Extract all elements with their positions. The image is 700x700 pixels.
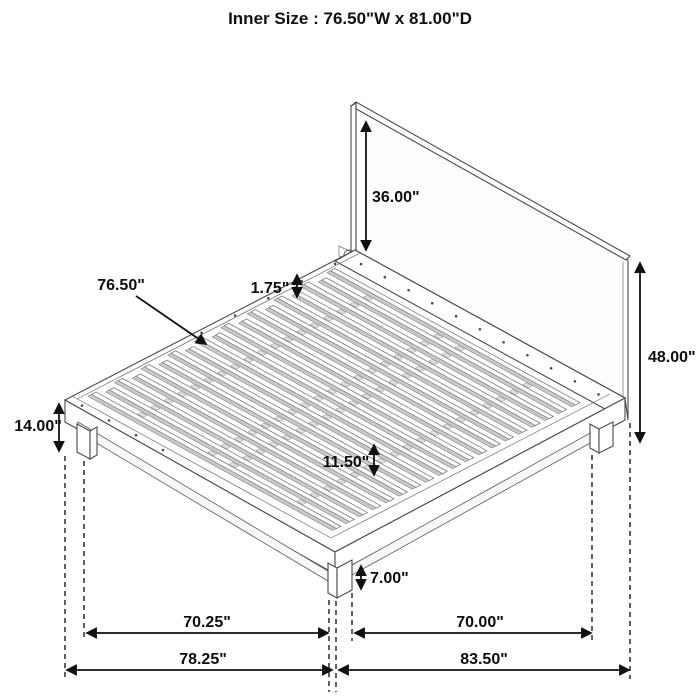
screw-dot bbox=[479, 328, 482, 331]
left-leg bbox=[77, 424, 97, 459]
screw-dot bbox=[108, 419, 111, 422]
screw-dot bbox=[162, 449, 165, 452]
bed-dimension-diagram-page: 36.00" 76.50" 1.75" 48.00" 14.00" 11.50"… bbox=[0, 0, 700, 700]
screw-dot bbox=[502, 341, 505, 344]
dim-label-leg-height: 7.00" bbox=[370, 570, 409, 587]
screw-dot bbox=[550, 367, 553, 370]
screw-dot bbox=[81, 404, 84, 407]
screw-dot bbox=[267, 297, 270, 300]
screw-dot bbox=[526, 354, 529, 357]
screw-dot bbox=[334, 263, 337, 266]
bed-dimension-diagram: 36.00" 76.50" 1.75" 48.00" 14.00" 11.50"… bbox=[0, 0, 700, 700]
screw-dot bbox=[300, 280, 303, 283]
dim-label-overall-depth: 83.50" bbox=[460, 651, 508, 668]
dim-label-center-rail-spacing: 11.50" bbox=[323, 454, 370, 471]
screw-dot bbox=[431, 302, 434, 305]
dim-label-overall-width: 78.25" bbox=[179, 651, 227, 668]
screw-dot bbox=[200, 332, 203, 335]
dim-label-headboard-height: 36.00" bbox=[372, 189, 420, 206]
dim-leader-slat-length bbox=[136, 296, 206, 344]
screw-dot bbox=[135, 434, 138, 437]
headboard-left-edge bbox=[351, 103, 356, 253]
screw-dot bbox=[597, 393, 600, 396]
screw-dot bbox=[455, 315, 458, 318]
screw-dot bbox=[574, 380, 577, 383]
dim-label-leg-span-width: 70.25" bbox=[183, 614, 231, 631]
dim-label-platform-height: 14.00" bbox=[14, 418, 62, 435]
dim-label-overall-height: 48.00" bbox=[648, 349, 696, 366]
dim-label-slat-length: 76.50" bbox=[97, 277, 145, 294]
dim-label-leg-span-depth: 70.00" bbox=[456, 614, 504, 631]
screw-dot bbox=[234, 314, 237, 317]
screw-dot bbox=[360, 263, 363, 266]
page-title: Inner Size : 76.50"W x 81.00"D bbox=[228, 9, 472, 28]
screw-dot bbox=[407, 289, 410, 292]
screw-dot bbox=[384, 276, 387, 279]
dim-label-slat-thickness: 1.75" bbox=[251, 280, 290, 297]
